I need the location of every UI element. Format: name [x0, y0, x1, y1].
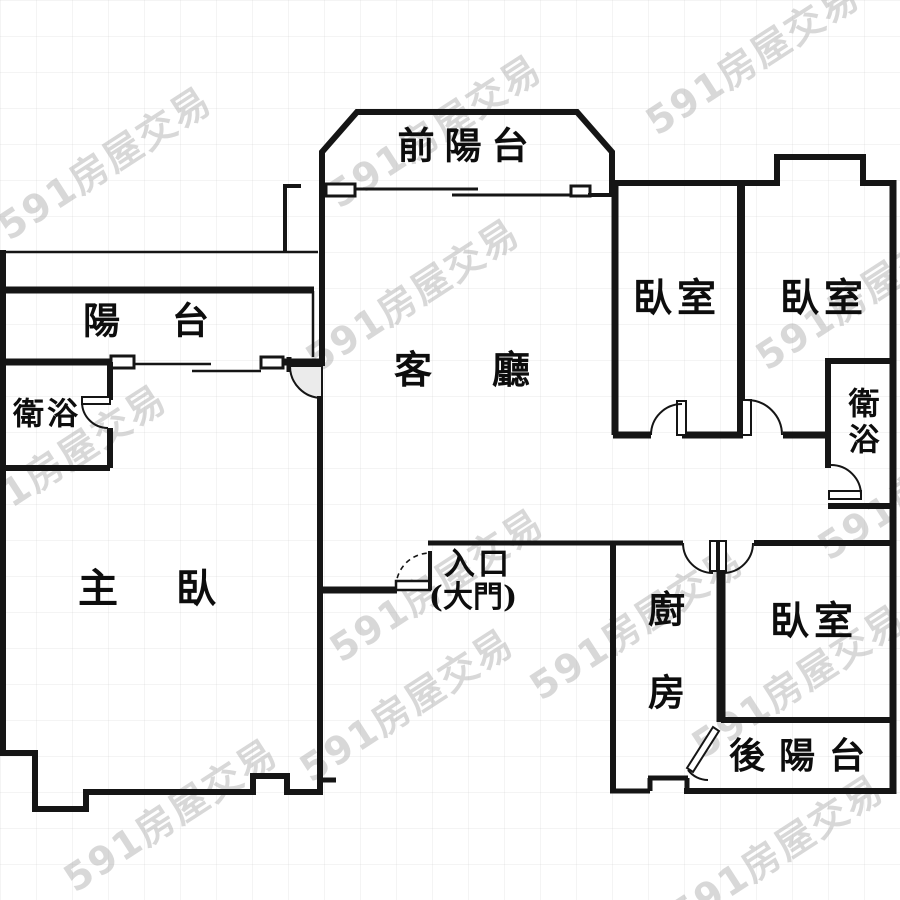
- wall-bedrooms-top: [612, 157, 896, 183]
- door-bathroom-right: [829, 465, 861, 499]
- door-bathroom-left: [82, 397, 110, 428]
- sliding-door-front-balcony: [326, 184, 614, 196]
- wall-stub-top: [283, 184, 301, 252]
- door-bedroom-right: [719, 541, 753, 573]
- entrance-sublabel: (大門): [429, 583, 517, 613]
- room-label-bedroom-top-left: 臥室: [633, 280, 721, 319]
- room-label-living-room: 客廳: [394, 351, 590, 389]
- room-label-bedroom-top-right: 臥室: [780, 280, 868, 319]
- door-bedroom-1: [651, 401, 686, 435]
- room-label-bath-left: 衛浴: [13, 400, 81, 431]
- room-label-front-balcony: 前陽台: [398, 128, 539, 165]
- wall-kitchen-bottom: [610, 778, 688, 791]
- room-label-rear-balcony: 後陽台: [729, 738, 879, 774]
- door-kitchen: [683, 541, 717, 573]
- wall-master-bottom: [0, 753, 323, 809]
- room-label-bedroom-right: 臥室: [770, 603, 858, 642]
- door-balcony-living: [290, 366, 322, 398]
- room-label-balcony: 陽台: [83, 303, 261, 340]
- floor-plan: 591房屋交易 591房屋交易 591房屋交易 591房屋交易 591房屋交易 …: [0, 0, 900, 900]
- room-label-kitchen: 廚房: [645, 590, 682, 756]
- room-label-master-bedroom: 主臥: [78, 569, 274, 609]
- entrance-label: 入口: [444, 550, 512, 581]
- door-entry: [396, 551, 430, 590]
- sliding-door-balcony: [111, 356, 283, 371]
- door-rear-balcony: [687, 727, 719, 780]
- door-bedroom-2: [742, 400, 782, 435]
- room-label-bath-right: 衛浴: [845, 387, 876, 459]
